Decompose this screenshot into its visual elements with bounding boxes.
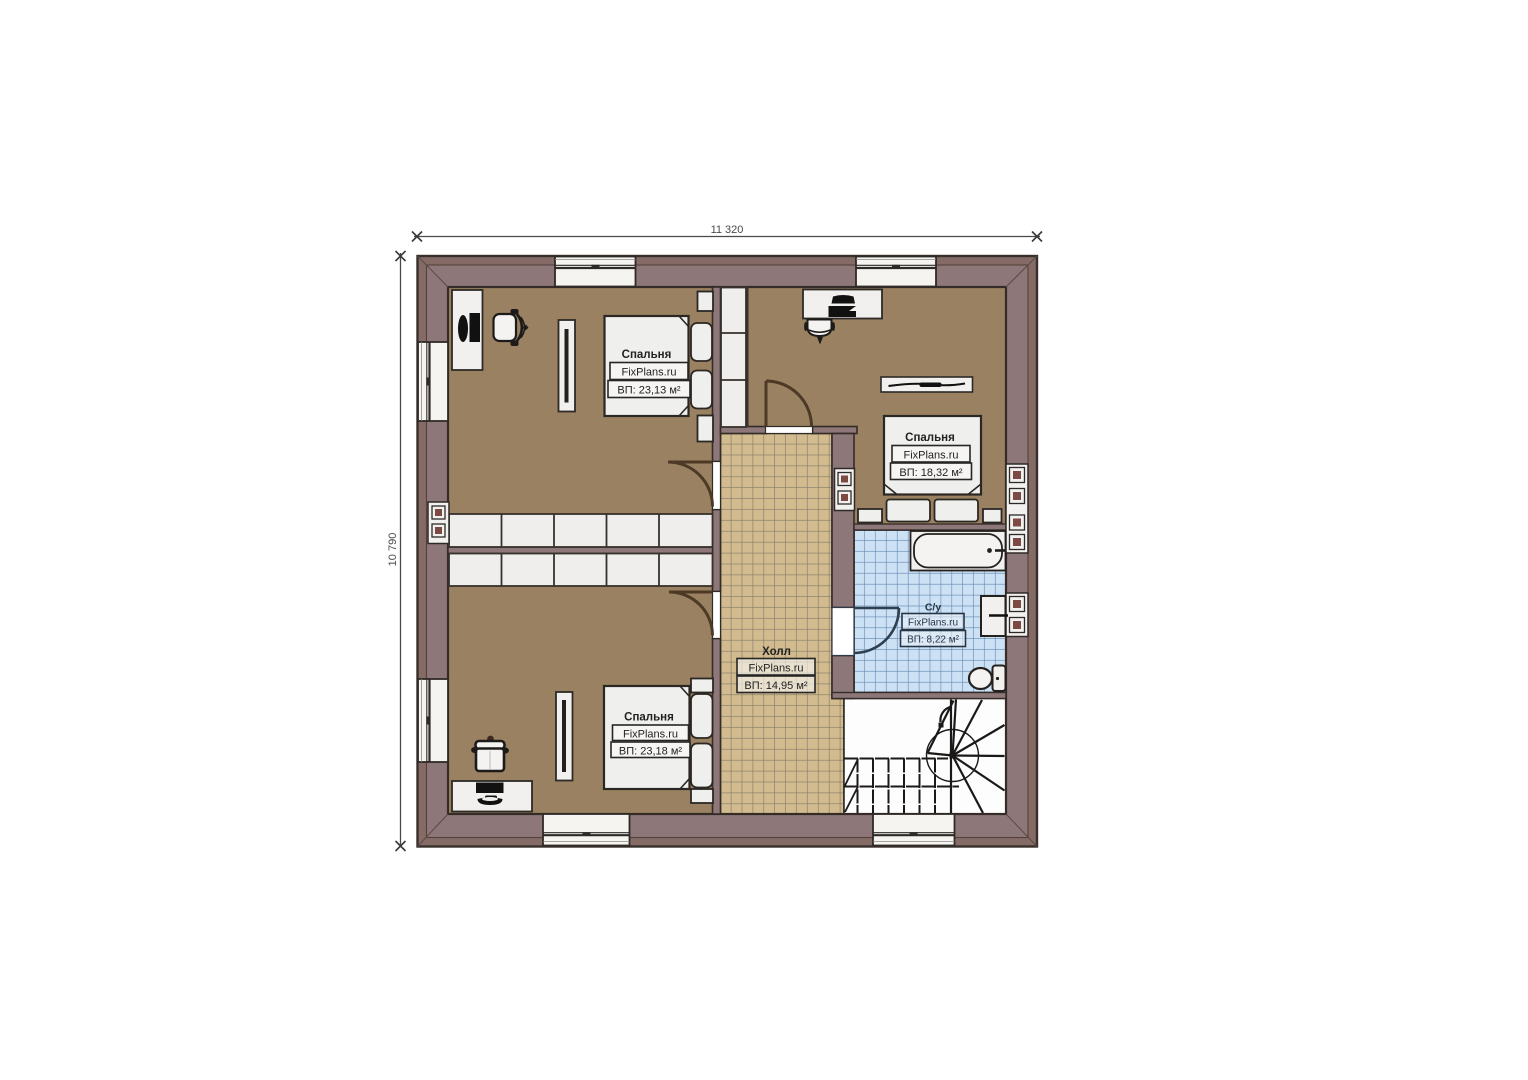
svg-text:FixPlans.ru: FixPlans.ru (908, 618, 958, 629)
svg-text:Спальня: Спальня (624, 712, 674, 724)
svg-text:ВП: 23,13 м²: ВП: 23,13 м² (617, 385, 681, 397)
svg-text:ВП: 18,32 м²: ВП: 18,32 м² (899, 467, 963, 479)
svg-text:ВП: 23,18 м²: ВП: 23,18 м² (619, 746, 683, 758)
svg-text:FixPlans.ru: FixPlans.ru (903, 450, 958, 462)
svg-text:FixPlans.ru: FixPlans.ru (621, 367, 676, 379)
svg-text:10 790: 10 790 (387, 533, 399, 567)
svg-text:FixPlans.ru: FixPlans.ru (623, 729, 678, 741)
svg-text:11 320: 11 320 (711, 224, 744, 236)
svg-text:С/у: С/у (925, 602, 942, 614)
svg-text:Спальня: Спальня (905, 432, 955, 444)
svg-text:Холл: Холл (762, 646, 791, 658)
svg-text:FixPlans.ru: FixPlans.ru (748, 663, 803, 675)
svg-text:ВП: 8,22 м²: ВП: 8,22 м² (907, 635, 960, 646)
svg-text:ВП: 14,95 м²: ВП: 14,95 м² (744, 680, 808, 692)
svg-text:Спальня: Спальня (622, 349, 672, 361)
